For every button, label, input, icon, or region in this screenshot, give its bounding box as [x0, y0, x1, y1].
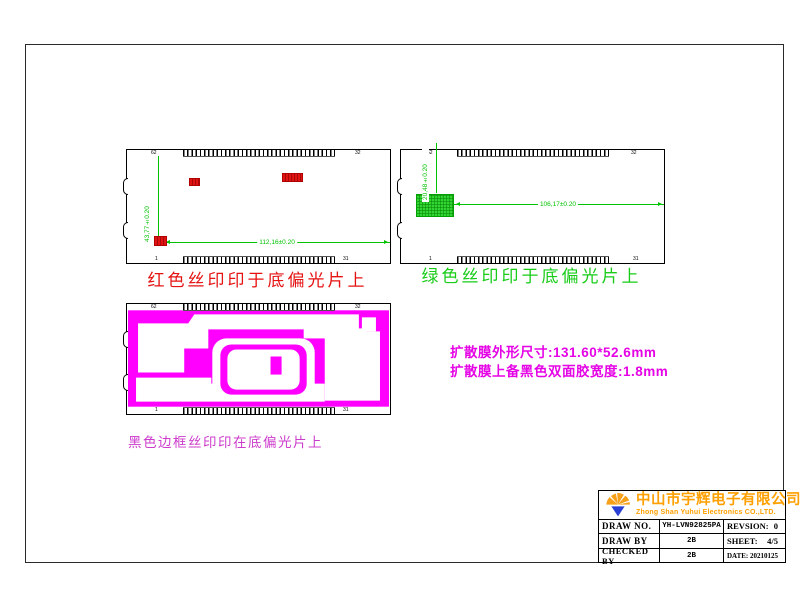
black-frame-silkscreen-shape [128, 310, 389, 407]
diffuser-tape-note: 扩散膜上备黑色双面胶宽度:1.8mm [450, 360, 668, 380]
pin-number: 32 [355, 151, 361, 156]
company-name-cn: 中山市宇辉电子有限公司 [636, 492, 783, 508]
pin-ticks-bottom [183, 256, 335, 263]
edge-notch [397, 178, 402, 195]
lcd-black-frame-drawing: 62 32 1 31 [126, 303, 391, 415]
title-block-row: DRAW NO. YH-LVN92825PA REVSION: 0 [599, 519, 785, 534]
red-silkscreen-mark [189, 178, 200, 186]
lcd-outline-red-drawing: 62 32 1 31 43,77±0.20 112,16±0.20 [126, 149, 391, 264]
red-silkscreen-mark [282, 173, 303, 182]
edge-notch [397, 222, 402, 239]
pin-ticks-top [183, 304, 335, 311]
revision-cell: REVSION: 0 [723, 519, 785, 533]
title-block: 中山市宇辉电子有限公司 Zhong Shan Yuhui Electronics… [598, 490, 786, 563]
revision-label: REVSION: [727, 521, 769, 531]
pin-number: 62 [151, 151, 157, 156]
draw-no-label: DRAW NO. [599, 519, 659, 533]
lcd-outline-green-drawing: 62 32 1 31 20,48±0.20 106,17±0.20 [400, 149, 665, 264]
red-drawing-caption: 红色丝印印于底偏光片上 [126, 266, 389, 291]
horizontal-dimension-label: 112,16±0.20 [257, 239, 297, 246]
checked-by-label: CHECKED BY [599, 549, 659, 562]
pin-ticks-top [457, 150, 609, 157]
revision-value: 0 [774, 521, 778, 531]
sheet-label: SHEET: [727, 536, 758, 546]
date-label: DATE: [727, 552, 748, 560]
pin-number: 31 [343, 408, 349, 413]
sheet-cell: SHEET: 4/5 [723, 534, 785, 548]
vertical-dimension-line [158, 156, 159, 242]
date-cell: DATE: 20210125 [723, 549, 785, 562]
pin-number: 1 [155, 408, 158, 413]
drawing-sheet: 62 32 1 31 43,77±0.20 112,16±0.20 红色丝印印于… [0, 0, 800, 608]
pin-number: 32 [631, 151, 637, 156]
date-value: 20210125 [750, 552, 778, 560]
edge-notch [123, 331, 128, 348]
pin-ticks-bottom [183, 407, 335, 414]
vertical-dimension-label: 43,77±0.20 [144, 164, 151, 244]
title-block-header: 中山市宇辉电子有限公司 Zhong Shan Yuhui Electronics… [599, 491, 785, 520]
horizontal-dimension-label: 106,17±0.20 [538, 201, 578, 208]
pin-ticks-top [183, 150, 335, 157]
pin-number: 31 [343, 257, 349, 262]
edge-notch [123, 178, 128, 195]
pin-number: 62 [151, 305, 157, 310]
checked-by-value: 2B [659, 549, 724, 562]
red-silkscreen-mark [154, 236, 167, 246]
company-name-en: Zhong Shan Yuhui Electronics CO.,LTD. [636, 508, 783, 517]
pin-number: 1 [155, 257, 158, 262]
edge-notch [123, 374, 128, 391]
green-drawing-caption: 绿色丝印印于底偏光片上 [400, 262, 663, 287]
diffuser-size-note: 扩散膜外形尺寸:131.60*52.6mm [450, 341, 656, 361]
draw-by-value: 2B [659, 534, 724, 548]
edge-notch [123, 222, 128, 239]
draw-no-value: YH-LVN92825PA [659, 519, 724, 533]
vertical-dimension-label: 20,48±0.20 [422, 146, 429, 202]
black-frame-caption: 黑色边框丝印印在底偏光片上 [128, 431, 408, 451]
sheet-value: 4/5 [767, 536, 778, 546]
vertical-dimension-line [436, 143, 437, 193]
company-logo-icon [603, 493, 633, 518]
title-block-row: CHECKED BY 2B DATE: 20210125 [599, 549, 785, 562]
pin-number: 32 [355, 305, 361, 310]
